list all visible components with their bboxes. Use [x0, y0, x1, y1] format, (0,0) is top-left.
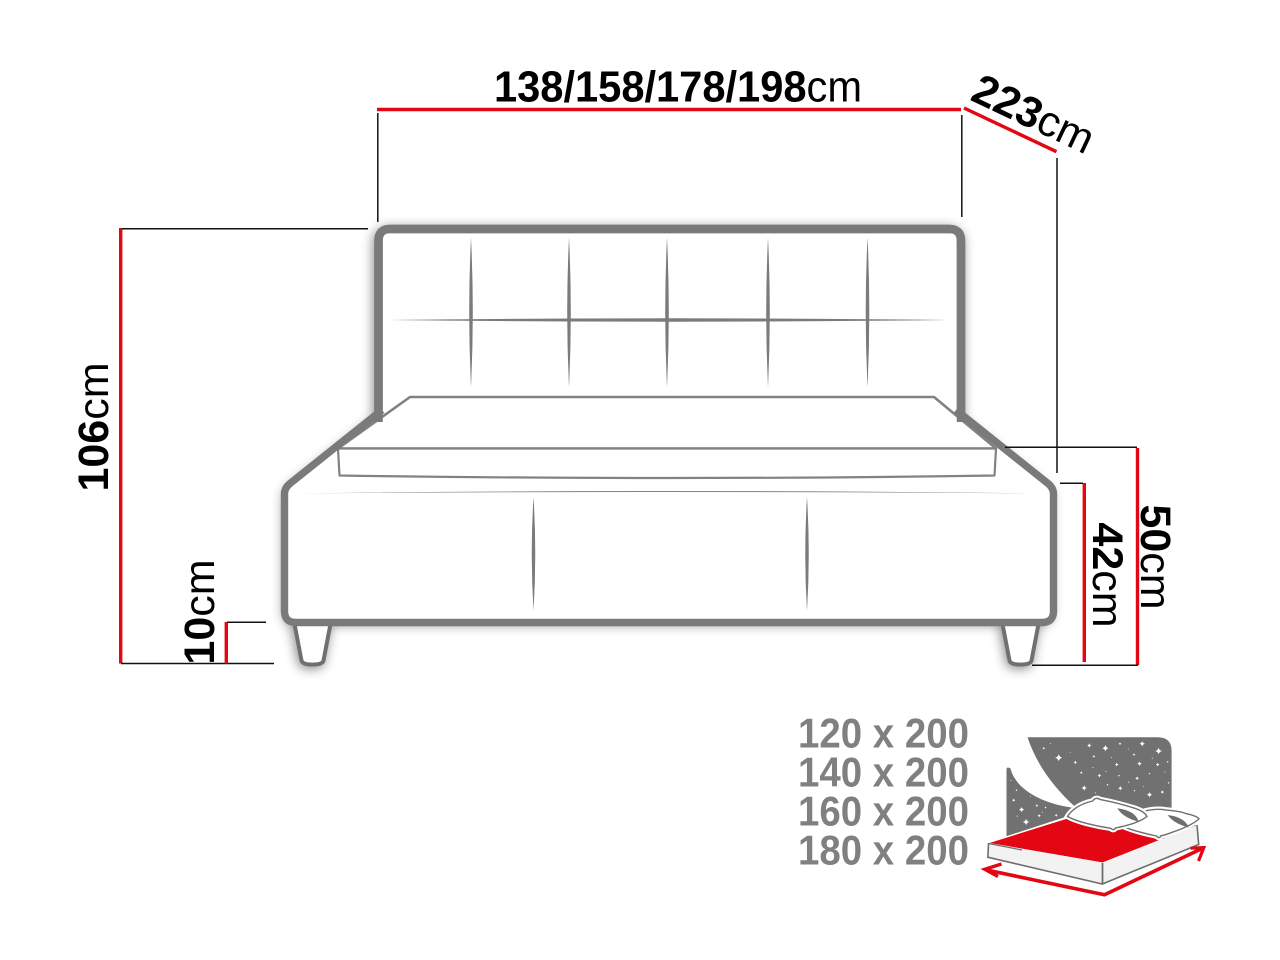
- svg-text:10cm: 10cm: [176, 559, 224, 664]
- svg-text:223cm: 223cm: [965, 65, 1102, 164]
- svg-text:106cm: 106cm: [70, 362, 118, 491]
- svg-text:138/158/178/198cm: 138/158/178/198cm: [494, 63, 862, 112]
- svg-text:42cm: 42cm: [1083, 522, 1131, 627]
- svg-text:180 x 200: 180 x 200: [798, 827, 969, 874]
- svg-text:50cm: 50cm: [1131, 504, 1179, 609]
